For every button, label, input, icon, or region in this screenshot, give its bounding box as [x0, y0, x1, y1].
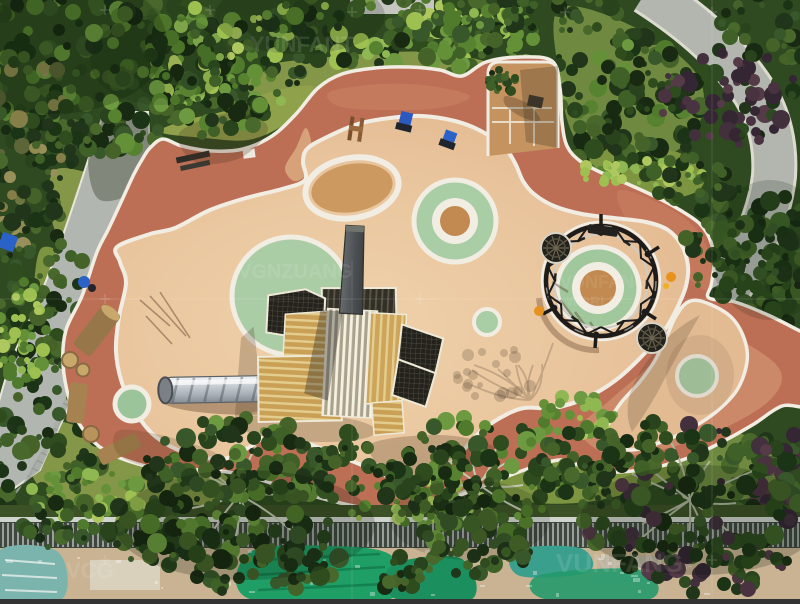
svg-text:VUNFANG: VUNFANG: [560, 272, 648, 292]
svg-text:VUNFANG: VUNFANG: [556, 548, 683, 578]
svg-text:VGNZUANG: VGNZUANG: [238, 261, 352, 283]
svg-text:WORLD: WORLD: [566, 293, 619, 309]
svg-text:VCG: VCG: [66, 558, 114, 583]
svg-text:YUNFANT: YUNFANT: [250, 32, 354, 57]
